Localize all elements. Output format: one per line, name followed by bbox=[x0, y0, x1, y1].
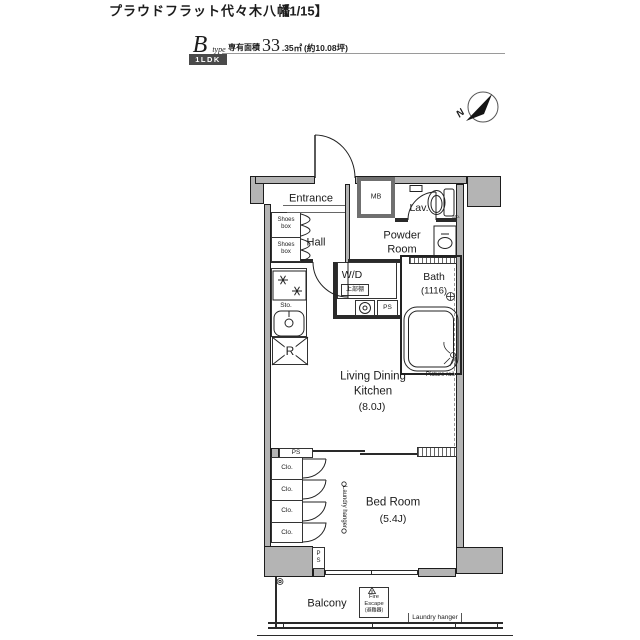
hall-label: Hall bbox=[307, 238, 326, 249]
floorplan-page: プラウドフラット代々木八幡 【1/15】 B type 1LDK 専有面積 33… bbox=[0, 0, 640, 640]
lav-label: Lav. bbox=[409, 203, 428, 214]
ldk-label-2: Kitchen bbox=[354, 386, 392, 398]
wall-bottom-left-block bbox=[264, 546, 313, 577]
balcony-rail-tick-4 bbox=[497, 622, 498, 629]
entrance-door-icon bbox=[315, 135, 355, 178]
closet-divider-1 bbox=[271, 479, 303, 480]
shoes-box-label-1: Shoes box bbox=[274, 217, 298, 231]
fire-escape-label-3: (避難器) bbox=[365, 609, 383, 614]
closet-divider-3 bbox=[271, 522, 303, 523]
sliding-door-leaf-2 bbox=[360, 453, 417, 455]
wall-top-right-stub bbox=[467, 176, 501, 207]
plan-linework bbox=[0, 0, 640, 640]
bedroom-door-pocket bbox=[417, 447, 457, 457]
area-tsubo: (約10.08坪) bbox=[304, 44, 348, 53]
balcony-rail-tick-1 bbox=[283, 622, 284, 629]
balcony-label: Balcony bbox=[307, 599, 346, 610]
bedroom-label: Bed Room bbox=[366, 497, 420, 509]
picture-rail-label: Picture rail bbox=[426, 372, 454, 378]
north-compass-icon bbox=[466, 92, 498, 122]
balcony-drain-icon bbox=[277, 579, 283, 585]
ps-bottom-label: PS bbox=[316, 551, 322, 565]
entrance-label: Entrance bbox=[289, 194, 333, 205]
ps-top-label: PS bbox=[292, 450, 301, 457]
bath-sliding-door bbox=[409, 257, 457, 264]
wall-left bbox=[264, 204, 271, 577]
area-label: 専有面積 bbox=[228, 44, 260, 52]
wall-powder-hall bbox=[345, 184, 350, 263]
balcony-rail-tick-2 bbox=[372, 622, 373, 629]
window-tick-r bbox=[417, 570, 418, 575]
window-tick-l bbox=[325, 570, 326, 575]
balcony-rail-tick-3 bbox=[455, 622, 456, 629]
bath-label-2: (1116) bbox=[421, 286, 447, 296]
powder-room-label-1: Powder bbox=[383, 231, 420, 242]
closet-label-4: Clo. bbox=[281, 529, 293, 536]
wall-top-a bbox=[255, 176, 315, 184]
entrance-step-line-2 bbox=[287, 212, 345, 213]
laundry-hanger-balcony-label: Laundry hanger bbox=[412, 615, 458, 622]
closet-divider-2 bbox=[271, 500, 303, 501]
wall-bottom-right-block bbox=[456, 547, 503, 574]
closet-doors-icon bbox=[303, 459, 326, 542]
ldk-size-label: (8.0J) bbox=[359, 402, 386, 413]
ldk-label-1: Living Dining bbox=[340, 371, 406, 383]
entrance-step-line-1 bbox=[283, 205, 345, 206]
powder-room-label-2: Room bbox=[387, 245, 416, 256]
water-heater-box bbox=[355, 300, 375, 316]
balcony-rail-top bbox=[268, 622, 503, 624]
closet-label-2: Clo. bbox=[281, 486, 293, 493]
upper-shelf-label: 上部棚 bbox=[346, 287, 364, 293]
refrigerator-label: R bbox=[285, 345, 296, 357]
balcony-left-edge bbox=[275, 577, 277, 628]
shoes-box-divider bbox=[271, 237, 301, 238]
wall-lav-powder-a bbox=[395, 218, 408, 222]
wall-bottom-seg2 bbox=[418, 568, 456, 577]
laundry-tick-r bbox=[461, 613, 462, 622]
balcony-rail-bottom bbox=[268, 627, 503, 629]
wd-label: W/D bbox=[342, 270, 362, 281]
window-tick-c bbox=[371, 570, 372, 575]
compass-n-label: N bbox=[455, 108, 467, 120]
sto-lav-label: Sto. bbox=[452, 215, 460, 220]
layout-badge: 1LDK bbox=[189, 54, 227, 65]
picture-rail-line bbox=[454, 268, 455, 446]
wall-bottom-seg1 bbox=[313, 568, 325, 577]
layout-badge-label: 1LDK bbox=[195, 56, 221, 64]
bedroom-size-label: (5.4J) bbox=[380, 514, 407, 525]
sto-kitchen-label: Sto. bbox=[280, 303, 292, 310]
vanity-icon bbox=[434, 226, 456, 257]
ps-mid-label: PS bbox=[383, 305, 392, 312]
site-boundary-line bbox=[257, 635, 513, 636]
bath-label-1: Bath bbox=[423, 272, 445, 283]
area-value-big: 33 bbox=[262, 36, 280, 54]
page-indicator: 【1/15】 bbox=[276, 5, 327, 18]
closet-label-3: Clo. bbox=[281, 508, 293, 515]
sliding-door-leaf-1 bbox=[313, 450, 365, 452]
laundry-tick-l bbox=[408, 613, 409, 622]
shoes-box-label-2: Shoes box bbox=[274, 242, 298, 256]
closet-label-1: Clo. bbox=[281, 465, 293, 472]
mb-label: MB bbox=[371, 194, 382, 201]
page-title: プラウドフラット代々木八幡 bbox=[109, 5, 291, 18]
laundry-hanger-room-label: Laundry hanger bbox=[341, 486, 347, 528]
area-value-small: .35㎡ bbox=[282, 44, 302, 53]
